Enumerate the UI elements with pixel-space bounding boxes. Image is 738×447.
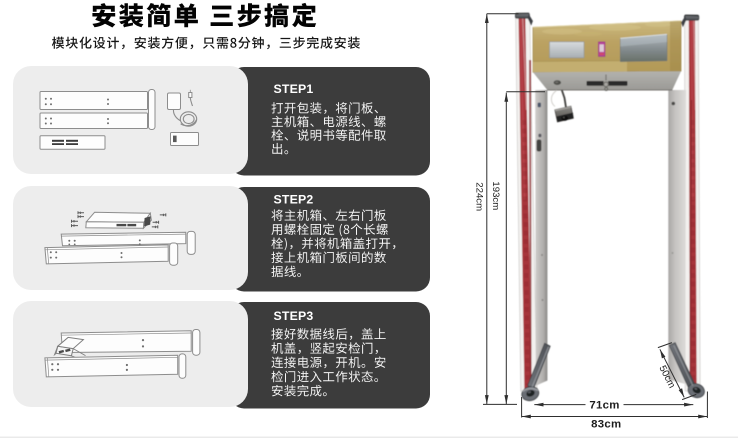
svg-text:STEP1: STEP1 bbox=[274, 82, 314, 96]
svg-text:193cm: 193cm bbox=[490, 181, 501, 210]
svg-text:STEP2: STEP2 bbox=[274, 193, 314, 207]
svg-text:83cm: 83cm bbox=[591, 419, 621, 431]
svg-text:71cm: 71cm bbox=[589, 400, 619, 412]
svg-text:STEP3: STEP3 bbox=[274, 309, 314, 323]
svg-text:224cm: 224cm bbox=[474, 182, 485, 211]
